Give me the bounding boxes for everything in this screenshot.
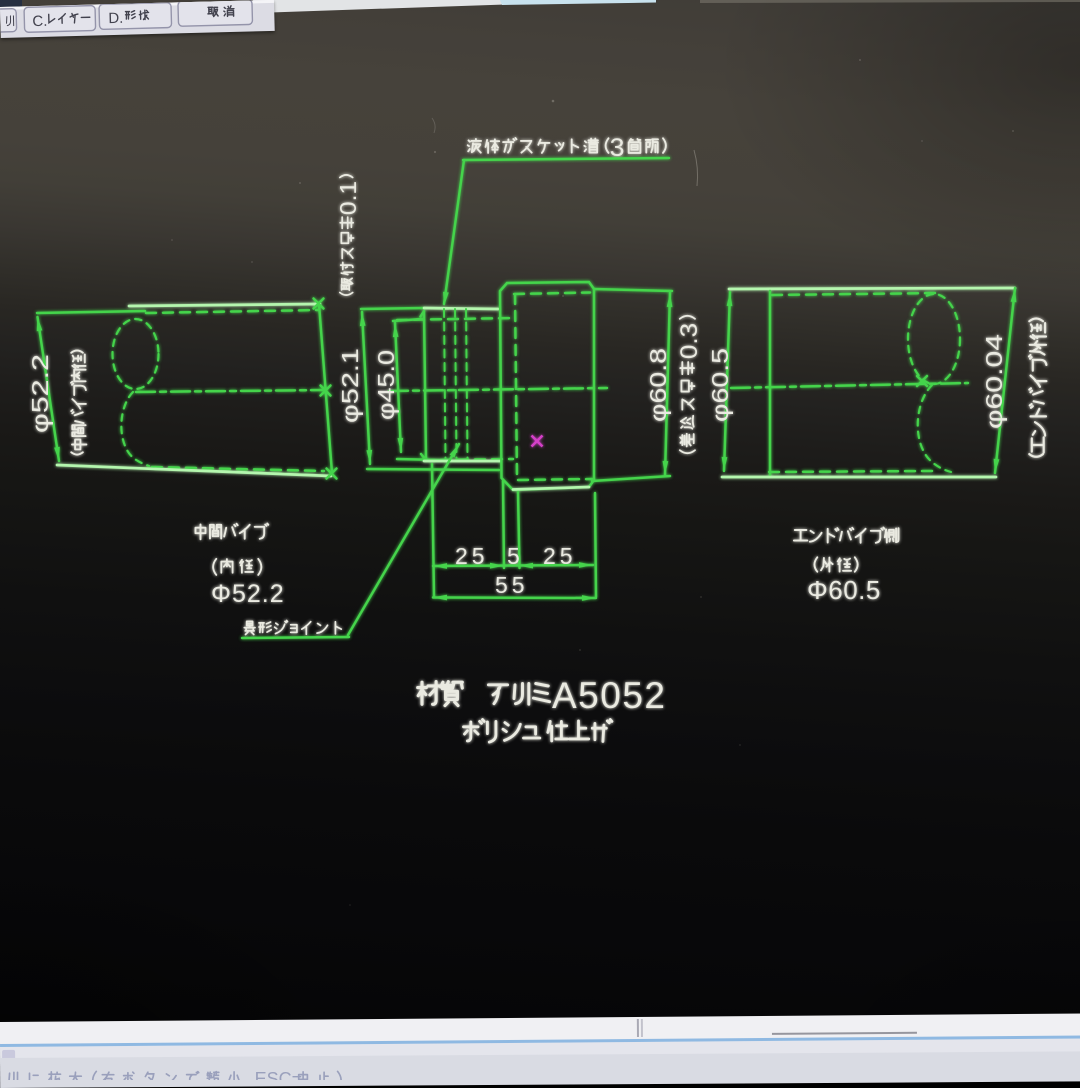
svg-text:55: 55 — [495, 572, 529, 598]
svg-text:φ45.0: φ45.0 — [373, 350, 399, 420]
svg-text:φ60.8: φ60.8 — [645, 348, 671, 422]
svg-text:Φ52.2: Φ52.2 — [211, 580, 285, 608]
svg-text:Φ60.5: Φ60.5 — [807, 575, 881, 605]
svg-text:3: 3 — [610, 135, 625, 162]
svg-text:φ52.2: φ52.2 — [27, 354, 53, 433]
svg-text:0.1: 0.1 — [335, 181, 361, 215]
svg-text:φ60.5: φ60.5 — [707, 348, 733, 422]
svg-text:5: 5 — [507, 543, 520, 569]
svg-text:25: 25 — [543, 543, 577, 569]
svg-text:φ52.1: φ52.1 — [337, 348, 363, 423]
svg-text:φ60.04: φ60.04 — [981, 334, 1007, 429]
svg-text:25: 25 — [455, 543, 489, 569]
svg-text:A5052: A5052 — [552, 675, 667, 716]
svg-text:C.: C. — [32, 13, 47, 30]
svg-text:D.: D. — [108, 10, 123, 27]
svg-text:0.3: 0.3 — [676, 323, 703, 359]
